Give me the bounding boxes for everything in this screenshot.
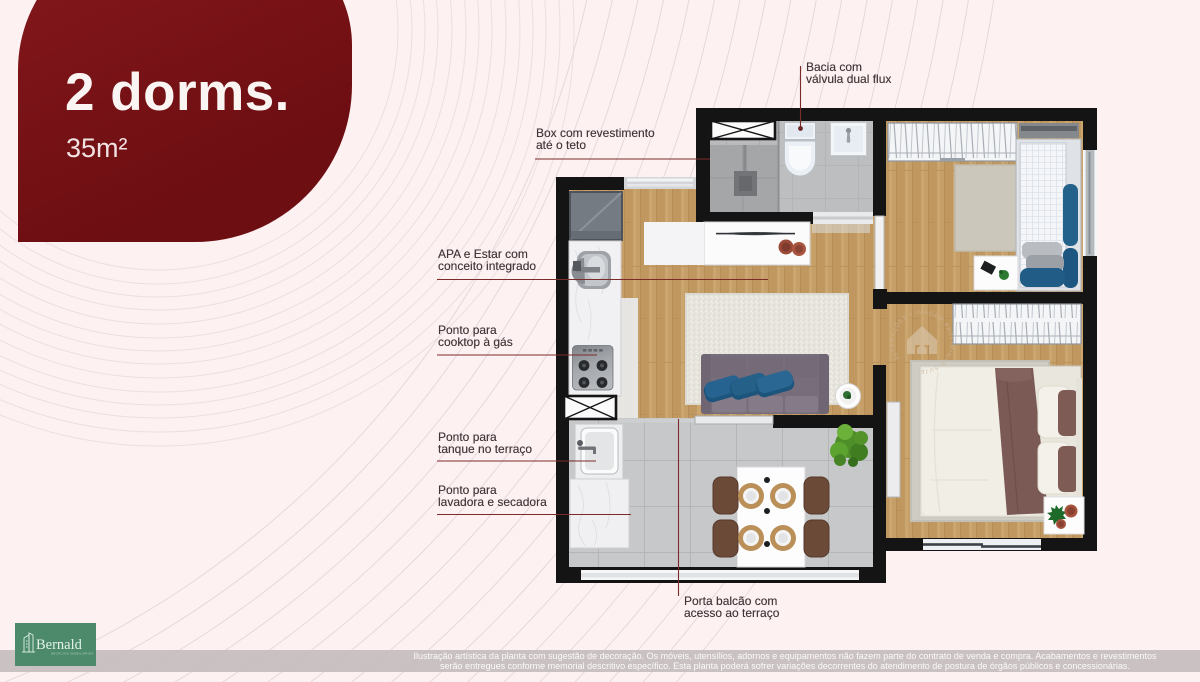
svg-text:Bernald: Bernald bbox=[36, 637, 83, 653]
